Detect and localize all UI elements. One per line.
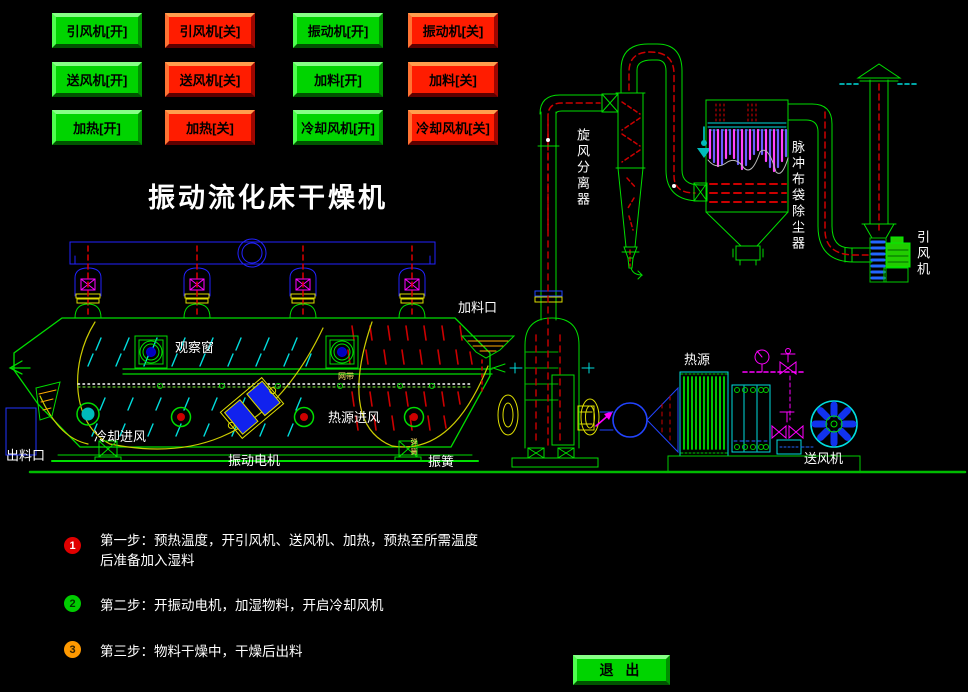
- label-vibration-motor: 振动电机: [228, 450, 280, 469]
- cyclone-separator-drawing: [538, 44, 706, 279]
- label-vibration-spring: 振簧: [428, 451, 454, 470]
- step-1-text: 第一步：预热温度，开引风机、送风机、加热，预热至所需温度后准备加入湿料: [100, 531, 480, 570]
- page-title: 振动流化床干燥机: [148, 176, 388, 215]
- bag-filter-drawing: [694, 100, 872, 265]
- step-2-badge: 2: [64, 595, 81, 612]
- label-supply-fan: 送风机: [804, 448, 843, 467]
- label-cyclone-separator: 旋风分离器: [576, 128, 589, 208]
- label-observation-window: 观察窗: [175, 337, 214, 356]
- exhaust-manifold: [70, 239, 435, 267]
- label-mesh-belt: 网带: [338, 371, 354, 382]
- step-3-text: 第三步：物料干燥中，干燥后出料: [100, 642, 480, 662]
- label-feed-port: 加料口: [458, 297, 497, 316]
- exhaust-ports: [75, 246, 425, 318]
- feed-off-button[interactable]: 加料[关]: [408, 62, 498, 97]
- scada-screen: 引风机[开] 引风机[关] 振动机[开] 振动机[关] 送风机[开] 送风机[关…: [0, 0, 968, 692]
- heat-source-radiator: [680, 372, 770, 456]
- label-pulse-bag-filter: 脉冲布袋除尘器: [791, 140, 804, 252]
- heat-off-button[interactable]: 加热[关]: [165, 110, 255, 145]
- fan-induced-on-button[interactable]: 引风机[开]: [52, 13, 142, 48]
- fan-induced-off-button[interactable]: 引风机[关]: [165, 13, 255, 48]
- fan-supply-on-button[interactable]: 送风机[开]: [52, 62, 142, 97]
- instrument-valves: [743, 349, 813, 455]
- observation-windows: [135, 336, 358, 368]
- exit-button[interactable]: 退 出: [573, 655, 670, 685]
- step-3-badge: 3: [64, 641, 81, 658]
- label-discharge-port: 出料口: [6, 445, 45, 464]
- heat-on-button[interactable]: 加热[开]: [52, 110, 142, 145]
- label-cooling-air-inlet: 冷却进风: [94, 426, 146, 445]
- label-spring-tiny: 弹簧: [410, 438, 417, 458]
- cooling-fan-off-button[interactable]: 冷却风机[关]: [408, 110, 498, 145]
- label-induced-draft-fan: 引风机: [916, 230, 929, 278]
- vibrator-on-button[interactable]: 振动机[开]: [293, 13, 383, 48]
- label-heat-air-inlet: 热源进风: [328, 407, 380, 426]
- vibrator-off-button[interactable]: 振动机[关]: [408, 13, 498, 48]
- label-heat-source: 热源: [684, 349, 710, 368]
- step-1-badge: 1: [64, 537, 81, 554]
- cooling-fan-on-button[interactable]: 冷却风机[开]: [293, 110, 383, 145]
- booster-fan-duct: [578, 388, 678, 452]
- feed-on-button[interactable]: 加料[开]: [293, 62, 383, 97]
- process-diagram: [0, 0, 968, 692]
- step-2-text: 第二步：开振动电机，加湿物料，开启冷却风机: [100, 596, 480, 616]
- fan-supply-off-button[interactable]: 送风机[关]: [165, 62, 255, 97]
